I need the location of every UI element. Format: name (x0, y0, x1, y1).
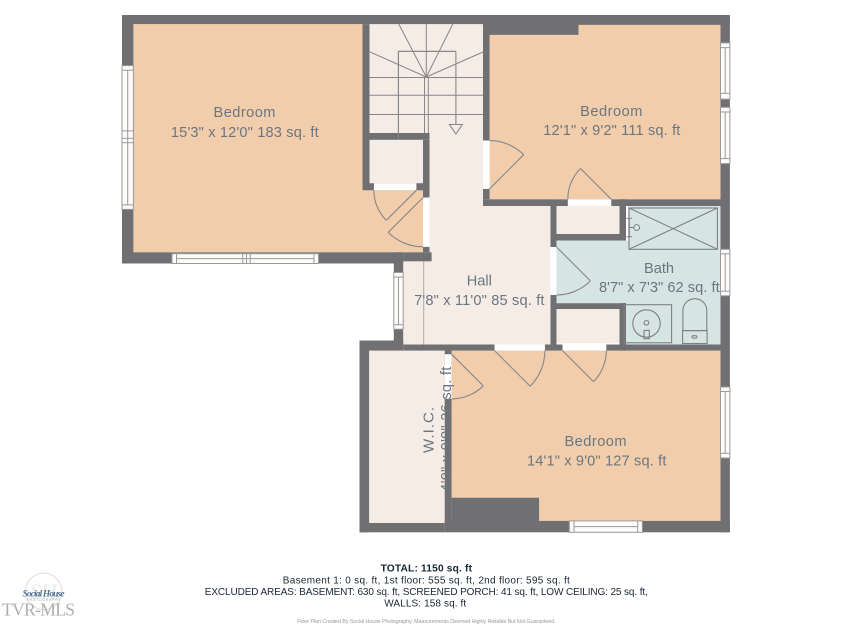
svg-text:14'1" x 9'0" 127 sq. ft: 14'1" x 9'0" 127 sq. ft (527, 454, 667, 470)
svg-text:Bedroom: Bedroom (214, 105, 276, 121)
svg-text:WALLS: 158 sq. ft: WALLS: 158 sq. ft (384, 599, 466, 610)
svg-text:Hall: Hall (467, 273, 492, 289)
svg-text:Bedroom: Bedroom (564, 434, 626, 450)
svg-text:7'8" x 11'0" 85 sq. ft: 7'8" x 11'0" 85 sq. ft (414, 293, 544, 309)
svg-text:W.I.C.: W.I.C. (420, 407, 437, 453)
svg-text:8'7" x 7'3" 62 sq. ft: 8'7" x 7'3" 62 sq. ft (599, 280, 720, 296)
svg-text:EXCLUDED AREAS: BASEMENT: 630: EXCLUDED AREAS: BASEMENT: 630 sq. ft, SC… (205, 587, 648, 598)
svg-text:Basement 1: 0 sq. ft, 1st floo: Basement 1: 0 sq. ft, 1st floor: 555 sq.… (283, 575, 570, 586)
svg-text:12'1" x 9'2" 111 sq. ft: 12'1" x 9'2" 111 sq. ft (543, 123, 680, 139)
svg-text:Bedroom: Bedroom (580, 104, 642, 120)
svg-text:15'3" x 12'0" 183 sq. ft: 15'3" x 12'0" 183 sq. ft (171, 125, 319, 141)
svg-text:Floor Plan Created By Social H: Floor Plan Created By Social House Photo… (297, 619, 556, 625)
svg-text:TVR-MLS: TVR-MLS (2, 600, 75, 620)
svg-text:TOTAL: 1150 sq. ft: TOTAL: 1150 sq. ft (381, 564, 473, 575)
svg-text:4'0" x 9'0" 26 sq. ft: 4'0" x 9'0" 26 sq. ft (439, 367, 455, 492)
svg-text:Bath: Bath (644, 261, 674, 277)
